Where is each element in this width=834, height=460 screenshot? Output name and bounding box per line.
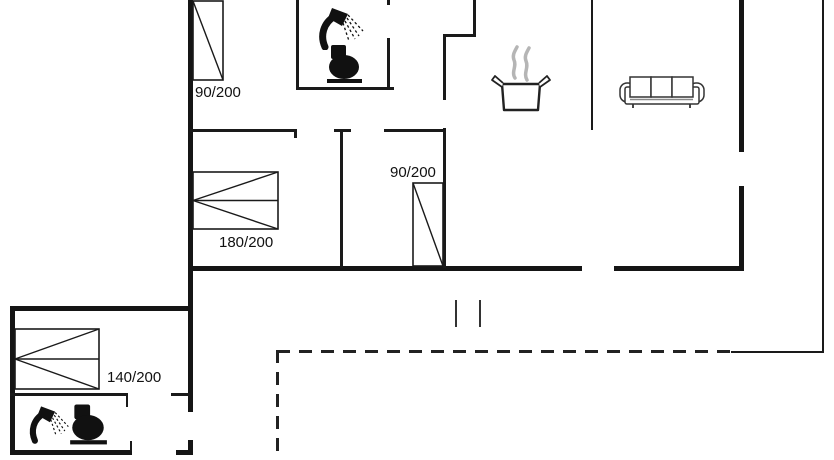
wall-right-lower [739,186,744,271]
toilet-icon [67,402,109,449]
annex-wall-bottom-right [176,450,193,455]
corridor-wall-left [190,129,296,132]
terrace-outline-dashed-horizontal [277,350,731,353]
bed-top-left [192,0,224,81]
bed-master [192,171,279,230]
bathroom-wall-right-stub [387,0,390,5]
shower-icon [27,400,71,448]
sofa-icon [619,76,705,110]
wall-bottom-main-right [614,266,744,271]
kitchen-wall-horizontal [444,34,476,37]
entrance-step-mark [455,300,457,327]
toilet-icon [324,45,364,85]
bed-size-label: 180/200 [219,234,273,251]
bathroom-wall-left [296,0,299,90]
corridor-wall-right [384,129,446,132]
bed-second [412,182,444,267]
annex-interior-wall-left [10,393,128,396]
bathroom-wall-right [387,38,390,90]
bathroom-wall-bottom [296,87,394,90]
entrance-step-mark [479,300,481,327]
shower-icon [316,6,366,50]
kitchen-wall-vertical-upper [443,34,446,100]
door-jamb [130,441,132,451]
bed-size-label: 90/200 [390,164,436,181]
kitchen-living-divider [591,0,593,130]
bed-size-label: 90/200 [195,84,241,101]
wall-bottom-main-left [188,266,582,271]
kitchen-wall-top-vertical [473,0,476,36]
terrace-outline-dashed-vertical [276,350,279,460]
right-terrace-boundary [822,0,824,353]
wall-right-upper [739,0,744,152]
bed-size-label: 140/200 [107,369,161,386]
bed-annex [14,328,100,390]
annex-wall-bottom-left [10,450,132,455]
door-jamb [294,129,297,138]
bedroom-divider-wall [340,131,343,268]
floor-plan: 90/200 180/200 90/200 140/200 [0,0,834,460]
terrace-bottom-solid [731,351,824,353]
door-jamb [126,393,128,407]
annex-interior-wall-right [171,393,190,396]
cooking-pot-icon [488,40,554,112]
annex-wall-top [10,306,193,311]
